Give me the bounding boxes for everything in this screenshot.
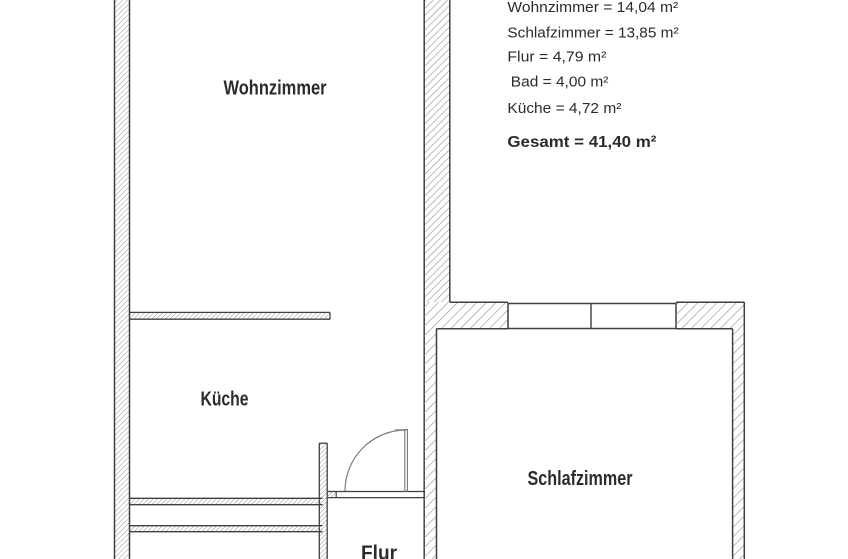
svg-text:Flur = 4,79 m²: Flur = 4,79 m²	[507, 50, 606, 66]
svg-text:Schlafzimmer = 13,85 m²: Schlafzimmer = 13,85 m²	[507, 26, 678, 42]
svg-text:Wohnzimmer = 14,04 m²: Wohnzimmer = 14,04 m²	[507, 0, 678, 16]
svg-text:Küche: Küche	[201, 388, 249, 411]
svg-text:Bad = 4,00 m²: Bad = 4,00 m²	[511, 75, 609, 91]
svg-text:Flur: Flur	[361, 542, 397, 559]
svg-text:Gesamt = 41,40 m²: Gesamt = 41,40 m²	[507, 134, 656, 151]
svg-text:Schlafzimmer: Schlafzimmer	[528, 467, 633, 490]
svg-text:Wohnzimmer: Wohnzimmer	[224, 77, 327, 100]
svg-text:Küche = 4,72 m²: Küche = 4,72 m²	[507, 101, 621, 117]
